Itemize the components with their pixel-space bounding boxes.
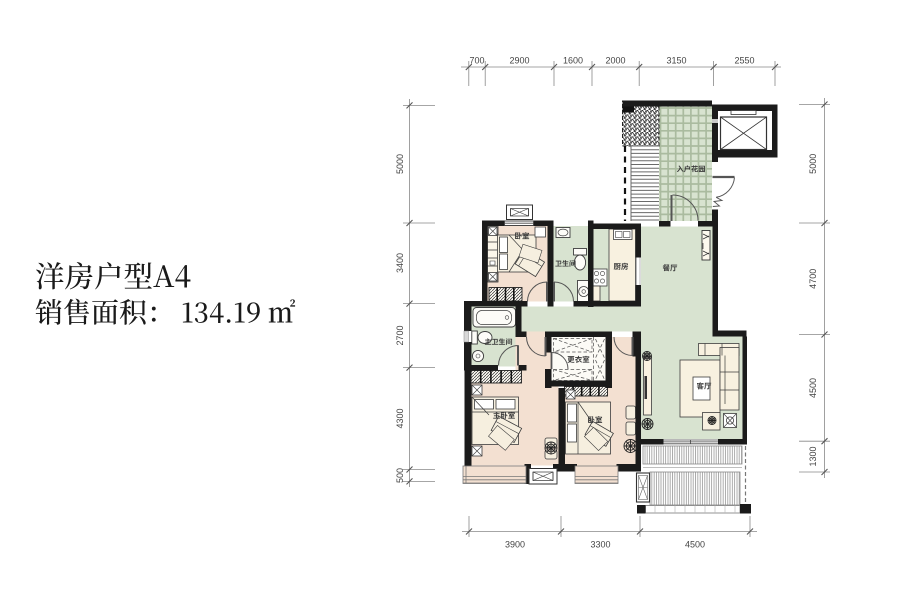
svg-text:4500: 4500 [685,540,705,550]
svg-text:2550: 2550 [734,56,754,66]
svg-text:3400: 3400 [395,253,405,273]
svg-text:5000: 5000 [395,154,405,174]
svg-text:4500: 4500 [808,378,818,398]
svg-text:700: 700 [469,56,484,66]
svg-text:3300: 3300 [590,540,610,550]
svg-text:500: 500 [395,468,405,483]
svg-text:1300: 1300 [808,446,818,466]
svg-text:4700: 4700 [808,269,818,289]
svg-text:3900: 3900 [505,540,525,550]
svg-text:1600: 1600 [563,56,583,66]
svg-text:3150: 3150 [666,56,686,66]
svg-text:2000: 2000 [605,56,625,66]
svg-text:4300: 4300 [395,408,405,428]
svg-text:2700: 2700 [395,325,405,345]
svg-text:5000: 5000 [808,154,818,174]
svg-text:2900: 2900 [509,56,529,66]
